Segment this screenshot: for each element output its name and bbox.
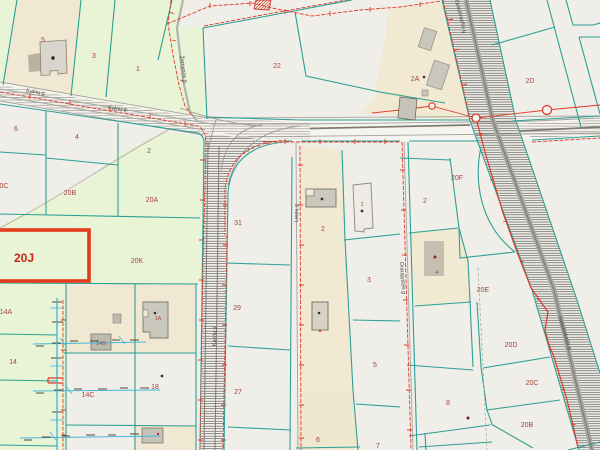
svg-text:4: 4 [435, 270, 438, 276]
svg-text:20E: 20E [477, 287, 490, 294]
svg-text:27: 27 [234, 389, 242, 396]
svg-text:Liepų g: Liepų g [294, 204, 300, 222]
svg-text:6: 6 [316, 437, 320, 444]
svg-text:7: 7 [376, 443, 380, 450]
svg-text:2: 2 [147, 148, 151, 155]
svg-text:5: 5 [41, 37, 45, 44]
svg-text:1: 1 [136, 66, 140, 73]
svg-text:4: 4 [75, 134, 79, 141]
svg-text:22: 22 [273, 63, 281, 70]
svg-text:2D: 2D [526, 78, 535, 85]
svg-text:18: 18 [151, 384, 159, 391]
svg-text:6: 6 [14, 126, 18, 133]
svg-text:1A: 1A [155, 316, 162, 322]
svg-text:2A: 2A [411, 76, 420, 83]
svg-text:31: 31 [234, 220, 242, 227]
svg-text:Kalvių g: Kalvių g [212, 326, 218, 346]
svg-text:20A: 20A [146, 197, 159, 204]
svg-text:29: 29 [233, 305, 241, 312]
svg-text:14C: 14C [82, 392, 95, 399]
svg-text:5: 5 [373, 362, 377, 369]
svg-text:14: 14 [9, 359, 17, 366]
svg-text:8: 8 [446, 400, 450, 407]
svg-text:2: 2 [423, 198, 427, 205]
svg-text:20B: 20B [64, 190, 77, 197]
svg-text:14B: 14B [96, 341, 106, 347]
svg-text:20B: 20B [521, 422, 534, 429]
svg-text:20C: 20C [0, 183, 8, 190]
svg-text:1: 1 [360, 202, 363, 208]
svg-text:2: 2 [321, 226, 325, 233]
svg-text:20C: 20C [526, 380, 539, 387]
svg-text:20F: 20F [451, 175, 463, 182]
svg-text:20K: 20K [131, 258, 144, 265]
svg-text:20J: 20J [14, 251, 34, 265]
svg-text:20D: 20D [505, 342, 518, 349]
svg-text:14A: 14A [0, 309, 13, 316]
svg-text:3: 3 [92, 53, 96, 60]
svg-text:3: 3 [367, 277, 371, 284]
